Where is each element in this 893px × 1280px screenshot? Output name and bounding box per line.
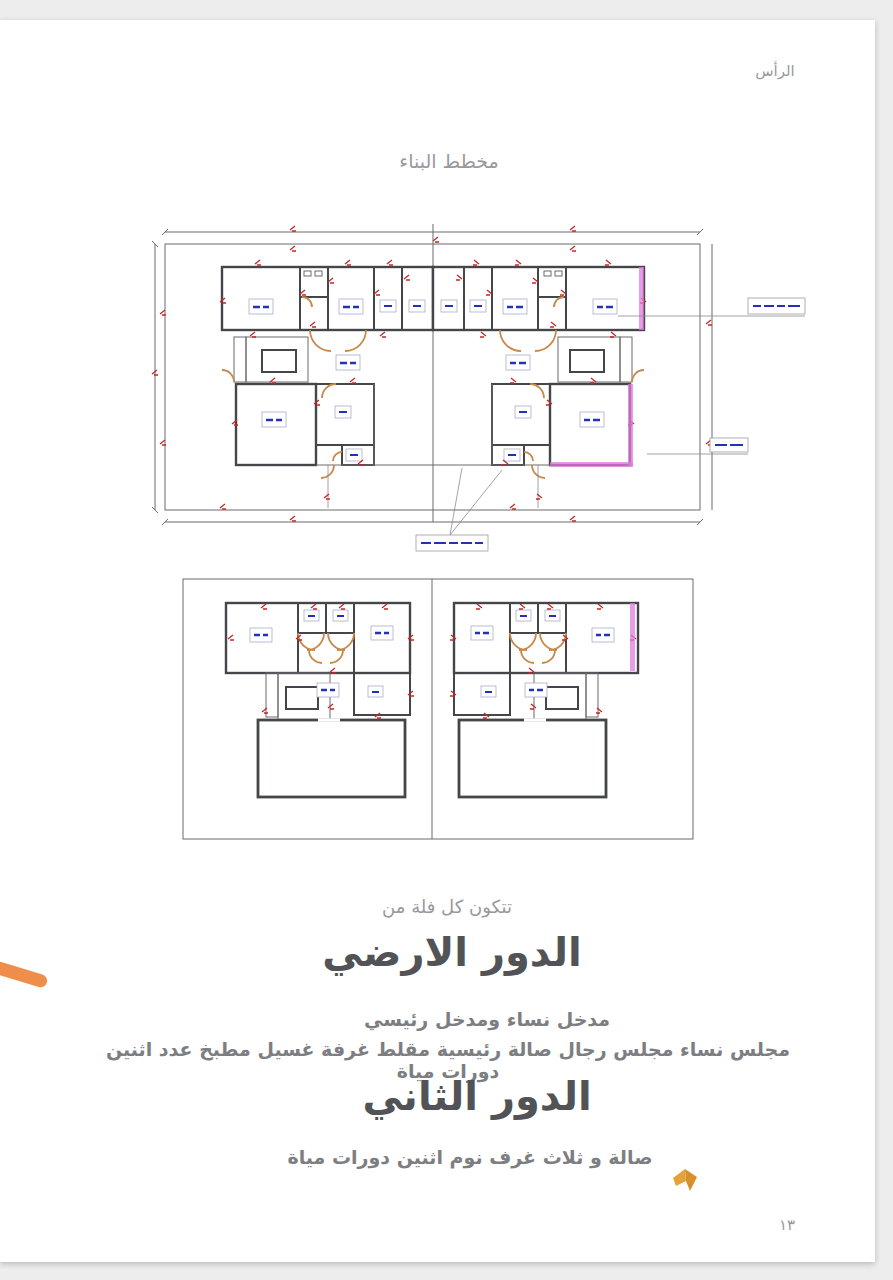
page-title: مخطط البناء	[299, 150, 599, 172]
villa-left	[220, 260, 433, 508]
villa-right	[433, 260, 646, 508]
viewer-background: { "document": { "header_note": "الرأس", …	[0, 0, 893, 1280]
villa-right	[450, 603, 638, 797]
second-floor-line-1: صالة و ثلاث غرف نوم اثنين دورات مياة	[270, 1146, 670, 1168]
ground-floor-line-1: مدخل نساء ومدخل رئيسي	[287, 1008, 687, 1030]
ground-floor-plan-drawing	[150, 212, 810, 557]
callout-right-bottom	[647, 438, 748, 454]
villa-left	[226, 603, 414, 797]
page-number: ١٣	[762, 1216, 812, 1234]
intro-text: تتكون كل فلة من	[297, 896, 597, 917]
highlight-wall	[639, 267, 644, 330]
orange-bookmark-icon	[670, 1166, 704, 1200]
highlight-wall	[630, 603, 635, 671]
second-floor-plan-drawing	[178, 575, 733, 850]
ground-floor-heading: الدور الارضي	[250, 928, 654, 976]
second-floor-heading: الدور الثاني	[277, 1072, 677, 1120]
header-note: الرأس	[740, 62, 810, 80]
document-page: الرأس مخطط البناء	[0, 20, 875, 1262]
orange-marker-stroke	[0, 960, 49, 989]
